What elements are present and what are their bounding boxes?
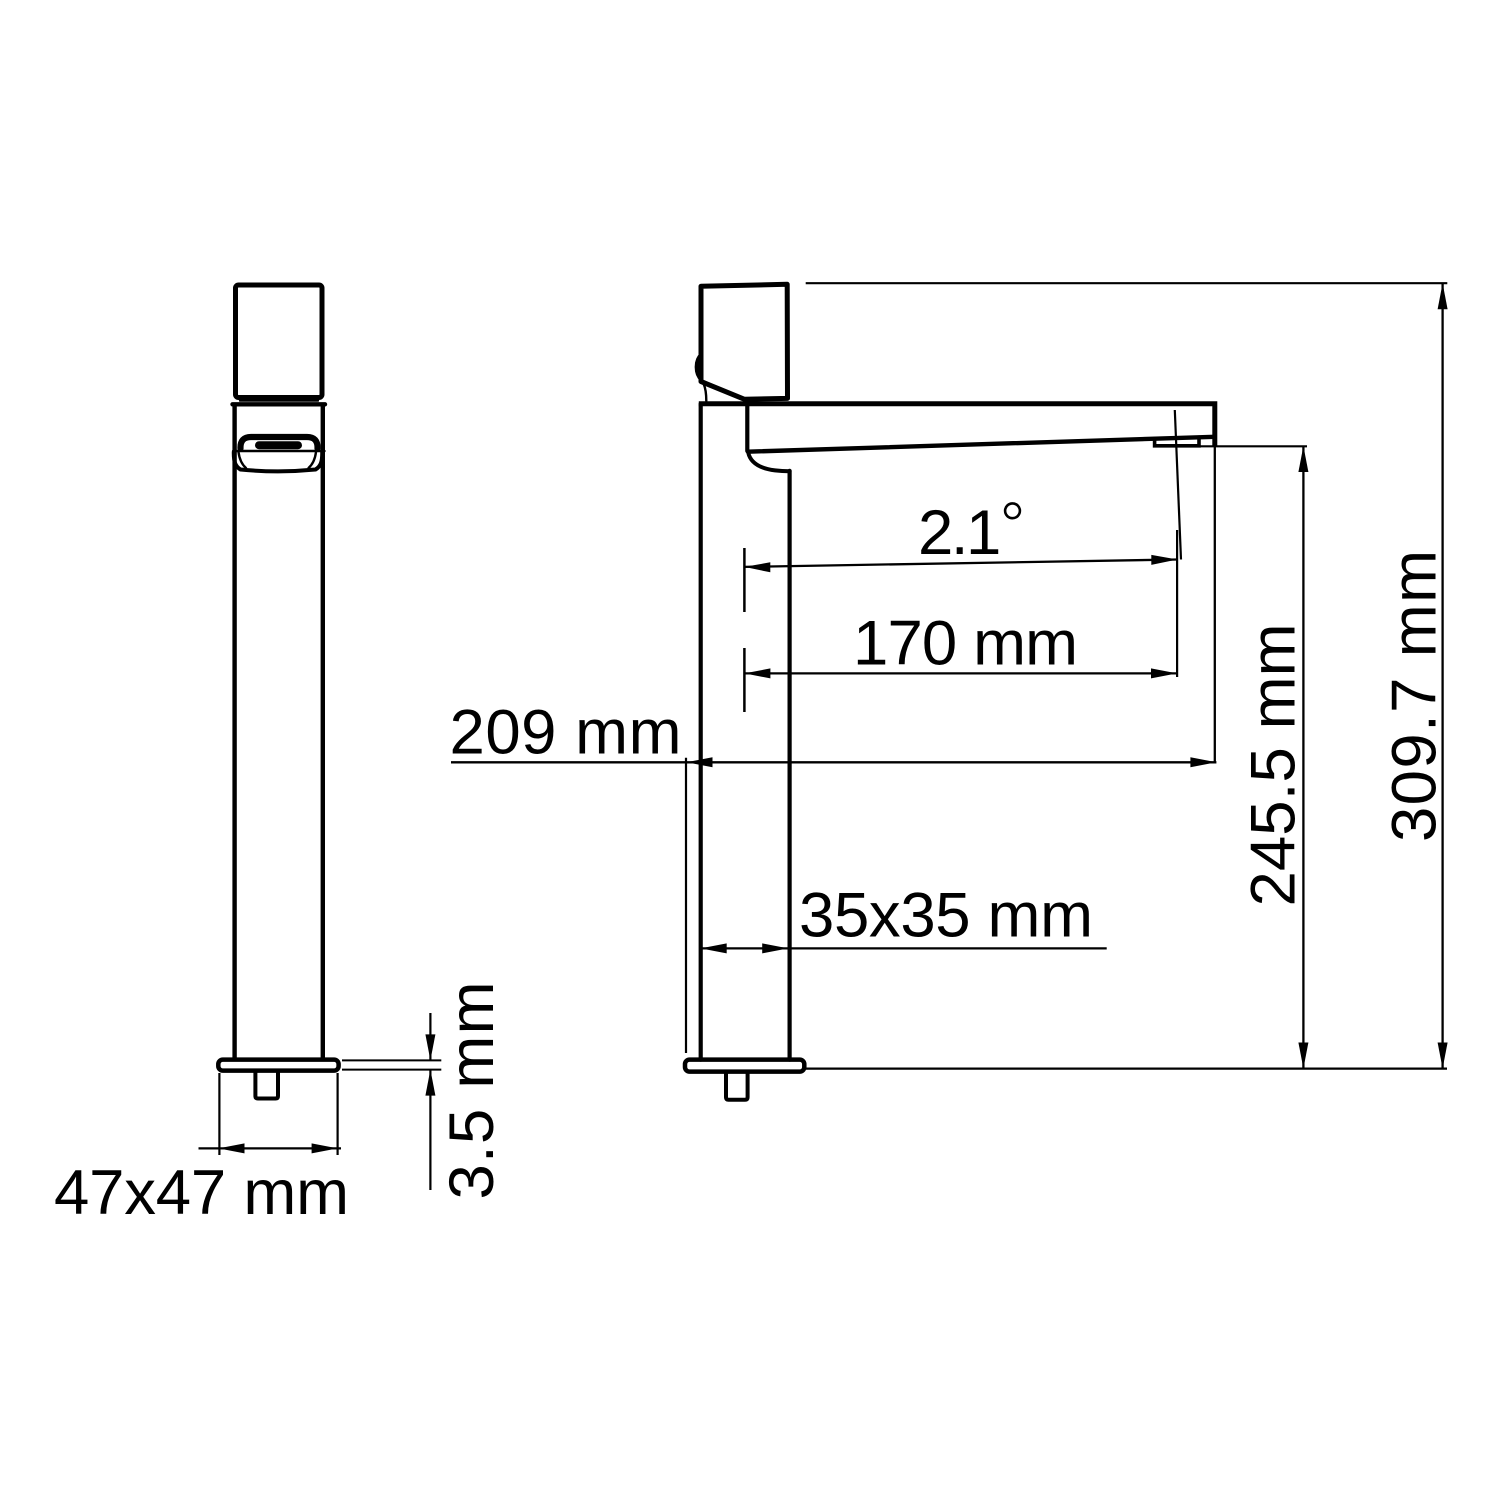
svg-text:245.5 mm: 245.5 mm xyxy=(1239,624,1309,907)
svg-text:209 mm: 209 mm xyxy=(450,697,682,767)
svg-text:170 mm: 170 mm xyxy=(853,608,1078,678)
svg-text:3.5 mm: 3.5 mm xyxy=(437,982,507,1200)
svg-text:47x47 mm: 47x47 mm xyxy=(54,1158,349,1228)
svg-text:309.7 mm: 309.7 mm xyxy=(1380,550,1450,842)
svg-text:2.1: 2.1 xyxy=(918,498,999,568)
svg-text:35x35 mm: 35x35 mm xyxy=(799,881,1093,951)
